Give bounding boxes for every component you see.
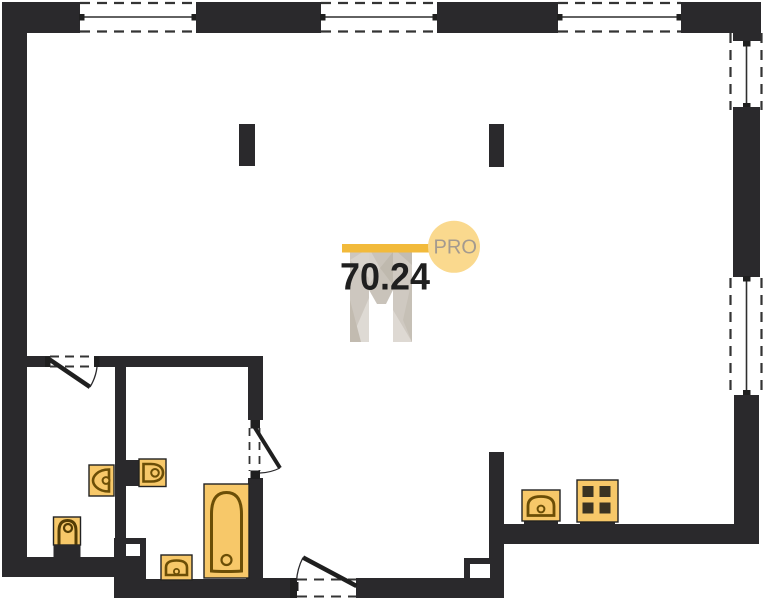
svg-text:PRO: PRO [434,236,478,259]
svg-text:70.24: 70.24 [340,257,430,299]
